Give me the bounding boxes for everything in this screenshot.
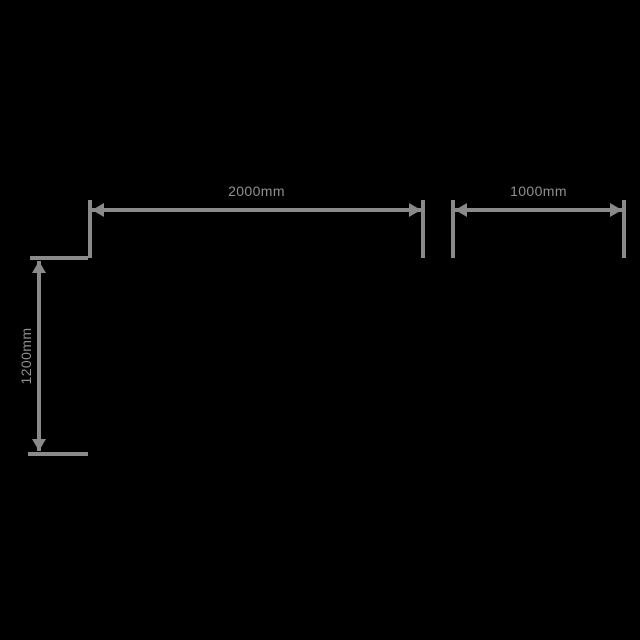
arrowhead-up-icon	[32, 261, 46, 273]
extension-line	[28, 452, 88, 456]
arrowhead-right-icon	[610, 203, 622, 217]
arrowhead-left-icon	[92, 203, 104, 217]
arrowhead-down-icon	[32, 439, 46, 451]
dimension-line	[455, 208, 622, 212]
dimension-label-left-height: 1200mm	[18, 316, 34, 396]
dimension-label-top-width: 2000mm	[92, 183, 421, 199]
extension-line	[421, 200, 425, 258]
dimension-diagram: 2000mm 1000mm 1200mm	[0, 0, 640, 640]
dimension-line	[37, 261, 41, 451]
extension-line	[622, 200, 626, 258]
dimension-label-top-right-width: 1000mm	[455, 183, 622, 199]
arrowhead-left-icon	[455, 203, 467, 217]
arrowhead-right-icon	[409, 203, 421, 217]
dimension-line	[92, 208, 421, 212]
extension-line	[30, 256, 88, 260]
